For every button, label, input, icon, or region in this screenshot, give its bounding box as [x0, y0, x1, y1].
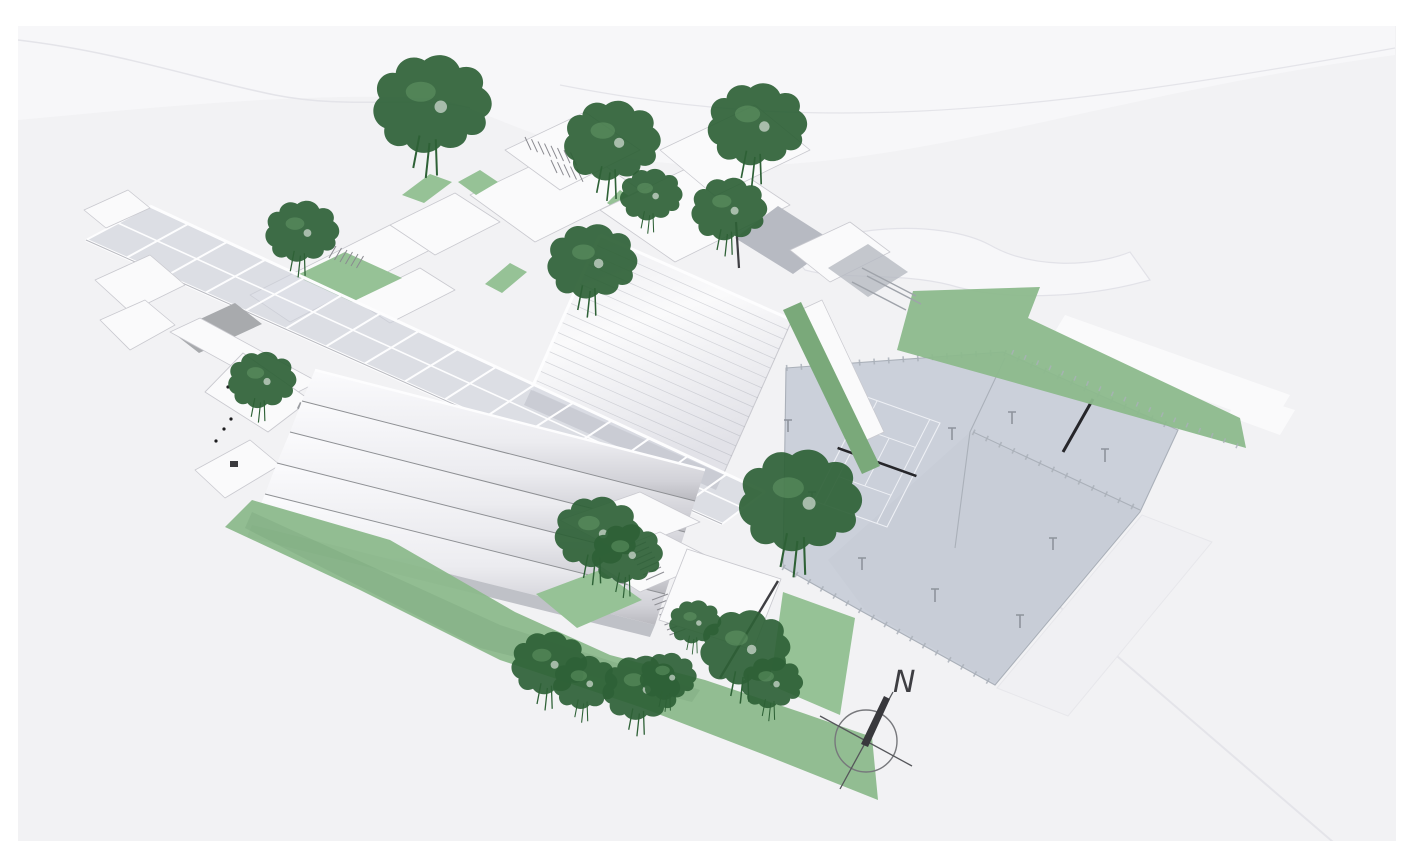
frame-top — [0, 0, 1413, 26]
frame-right — [1396, 0, 1413, 848]
frame-bottom — [0, 841, 1413, 848]
north-label: N — [893, 665, 915, 700]
aerial-architectural-rendering: N — [0, 0, 1413, 848]
site-rendering-canvas: N — [0, 0, 1413, 848]
frame-left — [0, 0, 18, 848]
window-opening — [230, 461, 238, 467]
